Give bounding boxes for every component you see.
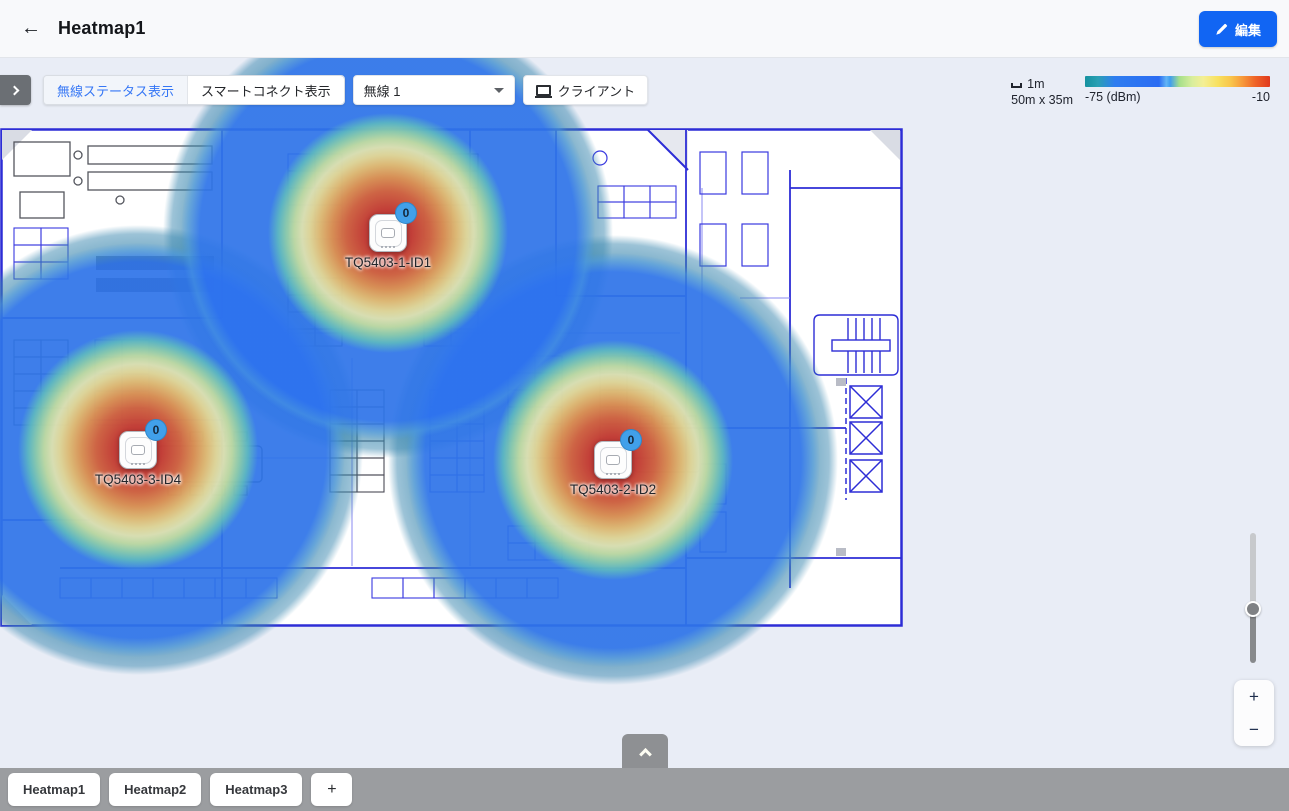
ap-name-label: TQ5403-2-ID2: [543, 482, 683, 497]
collapse-panel-button[interactable]: [622, 734, 668, 768]
client-button-label: クライアント: [558, 81, 635, 100]
expand-sidebar-button[interactable]: [0, 75, 31, 105]
ap-led-slot: [606, 455, 620, 465]
add-heatmap-button[interactable]: +: [311, 773, 352, 806]
ap-port-dots: [381, 246, 395, 248]
ap-port-dots: [606, 473, 620, 475]
header: ← Heatmap1 編集: [0, 0, 1289, 58]
signal-gradient-bar: [1085, 76, 1270, 87]
scale-label: 1m: [1027, 76, 1044, 92]
wireless-status-toggle[interactable]: 無線ステータス表示: [44, 76, 187, 104]
edit-button-label: 編集: [1235, 20, 1261, 39]
tab-heatmap3[interactable]: Heatmap3: [210, 773, 302, 806]
map-dimensions: 50m x 35m: [1011, 92, 1073, 108]
tab-heatmap1[interactable]: Heatmap1: [8, 773, 100, 806]
client-count-badge: 0: [395, 202, 417, 224]
slider-track-upper[interactable]: [1250, 533, 1256, 609]
slider-thumb[interactable]: [1245, 601, 1261, 617]
zoom-in-button[interactable]: +: [1234, 680, 1274, 713]
toolbar: 無線ステータス表示 スマートコネクト表示 無線 1 クライアント: [0, 75, 648, 105]
radio-select[interactable]: 無線 1: [353, 75, 515, 105]
zoom-button-panel: + −: [1234, 680, 1274, 746]
back-button[interactable]: ←: [14, 12, 48, 46]
zoom-slider[interactable]: [1247, 533, 1259, 663]
page-title: Heatmap1: [58, 18, 146, 39]
legend: 1m 50m x 35m -75 (dBm) -10: [1011, 76, 1270, 108]
radio-select-value: 無線 1: [364, 81, 401, 100]
ap-name-label: TQ5403-1-ID1: [318, 255, 458, 270]
client-count-badge: 0: [620, 429, 642, 451]
tab-bar: Heatmap1Heatmap2Heatmap3+: [0, 768, 1289, 811]
client-monitor-icon: [536, 85, 551, 96]
legend-max-label: -10: [1252, 90, 1270, 104]
client-button[interactable]: クライアント: [523, 75, 648, 105]
slider-track-lower[interactable]: [1250, 609, 1256, 663]
zoom-out-button[interactable]: −: [1234, 713, 1274, 746]
smart-connect-toggle[interactable]: スマートコネクト表示: [187, 76, 344, 104]
ap-port-dots: [131, 463, 145, 465]
ap-inner-outline: [125, 437, 152, 464]
chevron-up-icon: [639, 747, 652, 760]
ap-name-label: TQ5403-3-ID4: [68, 472, 208, 487]
display-toggle-group: 無線ステータス表示 スマートコネクト表示: [43, 75, 345, 105]
chevron-right-icon: [10, 85, 20, 95]
ap-inner-outline: [600, 447, 627, 474]
pencil-icon: [1215, 23, 1228, 36]
ap-led-slot: [381, 228, 395, 238]
ap-led-slot: [131, 445, 145, 455]
client-count-badge: 0: [145, 419, 167, 441]
chevron-down-icon: [494, 88, 504, 93]
scale-ruler-icon: [1011, 83, 1022, 88]
heatmap-canvas[interactable]: 無線ステータス表示 スマートコネクト表示 無線 1 クライアント 1m 50m …: [0, 58, 1289, 768]
ap-inner-outline: [375, 220, 402, 247]
edit-button[interactable]: 編集: [1199, 11, 1277, 47]
legend-min-label: -75 (dBm): [1085, 90, 1141, 104]
tab-heatmap2[interactable]: Heatmap2: [109, 773, 201, 806]
floorplan: [0, 128, 903, 627]
